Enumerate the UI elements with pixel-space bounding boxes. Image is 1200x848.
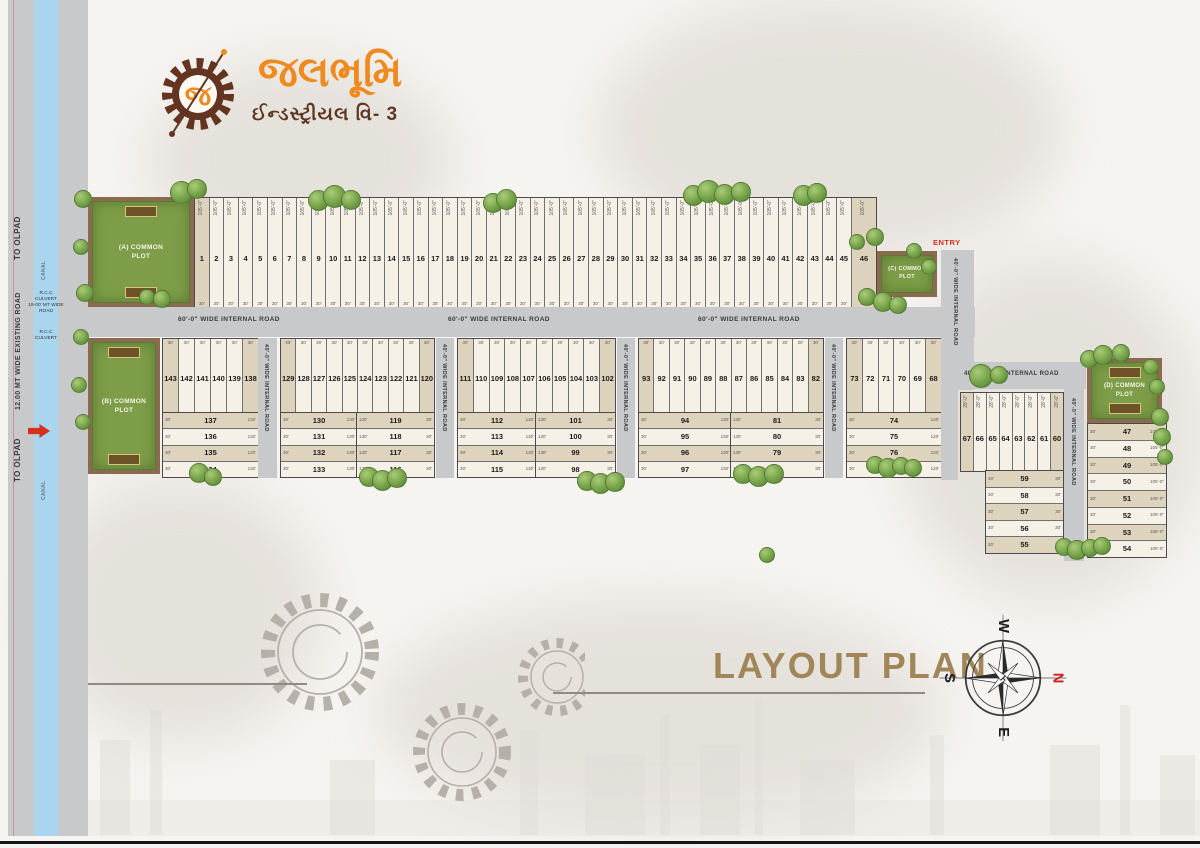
plot-block-73-68: 30'7330'7230'7130'7030'6930'68 xyxy=(846,338,942,414)
plot-126: 30'126 xyxy=(327,339,342,413)
cross-road-3-label: 40'-0" WIDE INTERNAL ROAD xyxy=(622,344,628,474)
plot-block-112-115: 30'112130'30'113130'30'114130'30'115130' xyxy=(457,412,537,478)
plot-80: 130'8030' xyxy=(731,429,823,445)
tree-icon xyxy=(187,179,207,199)
plot-20: 105'-0"2030' xyxy=(472,198,487,308)
plot-63: 28'-0"63 xyxy=(1013,393,1026,471)
tree-icon xyxy=(74,190,92,208)
plot-119: 130'11930' xyxy=(357,413,434,429)
plot-16: 105'-0"1630' xyxy=(414,198,429,308)
plot-4: 105'-0"430' xyxy=(239,198,254,308)
plot-57: 30'5730' xyxy=(986,504,1063,521)
plot-17: 105'-0"1730' xyxy=(429,198,444,308)
plot-108: 30'108 xyxy=(505,339,521,413)
plot-131: 30'131130' xyxy=(281,429,357,445)
plot-block-93-82: 30'9330'9230'9130'9030'8930'8830'8730'86… xyxy=(638,338,824,414)
tree-icon xyxy=(1151,408,1169,426)
plot-9: 105'-0"930' xyxy=(312,198,327,308)
plot-29: 105'-0"2930' xyxy=(604,198,619,308)
tree-icon xyxy=(1153,428,1171,446)
layout-plan-canvas: TO OLPAD TO OLPAD 12.00 MT WIDE EXISTING… xyxy=(0,0,1200,848)
plot-110: 30'110 xyxy=(474,339,490,413)
plot-97: 30'97130' xyxy=(639,462,731,477)
plot-100: 130'10030' xyxy=(536,429,615,445)
plot-137: 30'137130' xyxy=(163,413,258,429)
cross-road-4-label: 40'-0" WIDE INTERNAL ROAD xyxy=(830,344,836,474)
plot-138: 30'138 xyxy=(243,339,258,413)
plot-18: 105'-0"1830' xyxy=(443,198,458,308)
plot-111: 30'111 xyxy=(458,339,474,413)
compass-west: W xyxy=(995,619,1011,633)
plot-143: 30'143 xyxy=(163,339,179,413)
plot-41: 105'-0"4130' xyxy=(779,198,794,308)
plot-102: 30'102 xyxy=(600,339,615,413)
plot-26: 105'-0"2630' xyxy=(560,198,575,308)
plot-row-1-46: 105'-0"130'105'-0"230'105'-0"330'105'-0"… xyxy=(194,197,877,309)
canal-label-top: CANAL xyxy=(41,228,47,280)
logo-subtitle: ઈન્ડસ્ટ્રીયલ વિ- 3 xyxy=(252,104,398,126)
plot-block-67-60: 28'-0"6728'-0"6628'-0"6528'-0"6428'-0"63… xyxy=(960,392,1064,472)
plot-block-94-97: 30'94130'30'95130'30'96130'30'97130' xyxy=(638,412,732,478)
plot-87: 30'87 xyxy=(732,339,747,413)
plot-block-59-55: 30'5930'30'5830'30'5730'30'5630'30'5530' xyxy=(985,470,1064,554)
plot-38: 105'-0"3830' xyxy=(735,198,750,308)
plot-72: 30'72 xyxy=(863,339,879,413)
plot-92: 30'92 xyxy=(654,339,669,413)
plot-48: 30'48105'-0" xyxy=(1088,441,1166,458)
tree-icon xyxy=(1093,345,1113,365)
bottom-border-line xyxy=(0,841,1200,844)
cross-road-1-label: 40'-0" WIDE INTERNAL ROAD xyxy=(263,344,269,474)
plot-71: 30'71 xyxy=(879,339,895,413)
plot-block-101-98: 130'10130'130'10030'130'9930'130'9830' xyxy=(535,412,616,478)
plot-12: 105'-0"1230' xyxy=(356,198,371,308)
to-olpad-top-label: TO OLPAD xyxy=(13,190,22,260)
plot-44: 105'-0"4430' xyxy=(823,198,838,308)
plot-141: 30'141 xyxy=(195,339,211,413)
plot-81: 130'8130' xyxy=(731,413,823,429)
plot-95: 30'95130' xyxy=(639,429,731,445)
plot-88: 30'88 xyxy=(716,339,731,413)
plot-25: 105'-0"2530' xyxy=(545,198,560,308)
plot-69: 30'69 xyxy=(910,339,926,413)
tree-icon xyxy=(153,290,171,308)
plot-32: 105'-0"3230' xyxy=(647,198,662,308)
far-right-vertical-road-label: 40'-0" WIDE INTERNAL ROAD xyxy=(1070,398,1076,554)
plot-136: 30'136130' xyxy=(163,429,258,445)
plot-112: 30'112130' xyxy=(458,413,536,429)
plot-121: 30'121 xyxy=(404,339,419,413)
plot-101: 130'10130' xyxy=(536,413,615,429)
plot-114: 30'114130' xyxy=(458,446,536,462)
right-vertical-road-ext xyxy=(941,388,958,480)
plot-39: 105'-0"3930' xyxy=(750,198,765,308)
plot-113: 30'113130' xyxy=(458,429,536,445)
plot-99: 130'9930' xyxy=(536,446,615,462)
plot-79: 130'7930' xyxy=(731,446,823,462)
plot-96: 30'96130' xyxy=(639,446,731,462)
plot-94: 30'94130' xyxy=(639,413,731,429)
tree-icon xyxy=(387,468,407,488)
plot-118: 130'11830' xyxy=(357,429,434,445)
common-plot-b: (B) COMMON PLOT xyxy=(88,338,160,474)
plot-60: 28'-0"60 xyxy=(1051,393,1063,471)
plot-36: 105'-0"3630' xyxy=(706,198,721,308)
compass-east: E xyxy=(995,727,1011,737)
tree-icon xyxy=(1112,344,1130,362)
plot-115: 30'115130' xyxy=(458,462,536,477)
plot-109: 30'109 xyxy=(490,339,506,413)
plot-11: 105'-0"1130' xyxy=(341,198,356,308)
plot-125: 30'125 xyxy=(343,339,358,413)
plot-52: 30'52105'-0" xyxy=(1088,508,1166,525)
plot-15: 105'-0"1530' xyxy=(399,198,414,308)
plot-13: 105'-0"1330' xyxy=(370,198,385,308)
plot-66: 28'-0"66 xyxy=(974,393,987,471)
plot-103: 30'103 xyxy=(584,339,600,413)
decor-line-left xyxy=(85,683,307,685)
existing-road-label: 12.00 MT WIDE EXISTING ROAD xyxy=(15,252,22,410)
plot-93: 30'93 xyxy=(639,339,654,413)
plot-19: 105'-0"1930' xyxy=(458,198,473,308)
plot-65: 28'-0"65 xyxy=(987,393,1000,471)
plot-85: 30'85 xyxy=(762,339,777,413)
to-olpad-bottom-label: TO OLPAD xyxy=(13,412,22,482)
tree-icon xyxy=(807,183,827,203)
tree-icon xyxy=(605,472,625,492)
plot-122: 30'122 xyxy=(389,339,404,413)
tree-icon xyxy=(204,468,222,486)
plot-59: 30'5930' xyxy=(986,471,1063,488)
tree-icon xyxy=(759,547,775,563)
plot-31: 105'-0"3130' xyxy=(633,198,648,308)
plot-86: 30'86 xyxy=(747,339,762,413)
plot-30: 105'-0"3030' xyxy=(618,198,633,308)
plot-120: 30'120 xyxy=(420,339,434,413)
plot-117: 130'11730' xyxy=(357,446,434,462)
plot-61: 28'-0"61 xyxy=(1038,393,1051,471)
plot-43: 105'-0"4330' xyxy=(808,198,823,308)
plot-82: 30'82 xyxy=(809,339,823,413)
entry-right-label: ENTRY xyxy=(933,238,961,247)
plot-68: 30'68 xyxy=(926,339,941,413)
plot-3: 105'-0"330' xyxy=(224,198,239,308)
plot-132: 30'132130' xyxy=(281,446,357,462)
plot-28: 105'-0"2830' xyxy=(589,198,604,308)
plot-45: 105'-0"4530' xyxy=(837,198,852,308)
plot-7: 105'-0"730' xyxy=(283,198,298,308)
plot-10: 105'-0"1030' xyxy=(326,198,341,308)
plot-58: 30'5830' xyxy=(986,488,1063,505)
tree-icon xyxy=(904,459,922,477)
plot-49: 30'49105'-0" xyxy=(1088,458,1166,475)
plot-124: 30'124 xyxy=(358,339,373,413)
plot-90: 30'90 xyxy=(685,339,700,413)
plot-128: 30'128 xyxy=(296,339,311,413)
culvert-top-label: R.C.C CULVERT xyxy=(28,291,64,303)
canal xyxy=(34,0,58,836)
plot-40: 105'-0"4030' xyxy=(764,198,779,308)
plot-23: 105'-0"2330' xyxy=(516,198,531,308)
compass-rose: W N E S xyxy=(933,608,1073,748)
plot-27: 105'-0"2730' xyxy=(574,198,589,308)
plot-1: 105'-0"130' xyxy=(195,198,210,308)
plot-2: 105'-0"230' xyxy=(210,198,225,308)
plot-block-129-120: 30'12930'12830'12730'12630'12530'12430'1… xyxy=(280,338,435,414)
plot-50: 30'50105'-0" xyxy=(1088,474,1166,491)
cross-road-2-label: 40'-0" WIDE INTERNAL ROAD xyxy=(441,344,447,474)
title-underline xyxy=(553,692,925,694)
canal-label-bottom: CANAL xyxy=(41,448,47,500)
plot-62: 28'-0"62 xyxy=(1025,393,1038,471)
plot-block-130-133: 30'130130'30'131130'30'132130'30'133130' xyxy=(280,412,358,478)
tree-icon xyxy=(76,284,94,302)
plot-91: 30'91 xyxy=(670,339,685,413)
plot-block-111-102: 30'11130'11030'10930'10830'10730'10630'1… xyxy=(457,338,616,414)
plot-106: 30'106 xyxy=(537,339,553,413)
plot-123: 30'123 xyxy=(373,339,388,413)
plot-35: 105'-0"3530' xyxy=(691,198,706,308)
plot-42: 105'-0"4230' xyxy=(793,198,808,308)
plot-84: 30'84 xyxy=(778,339,793,413)
tree-icon xyxy=(1093,537,1111,555)
plot-142: 30'142 xyxy=(179,339,195,413)
plot-104: 30'104 xyxy=(569,339,585,413)
main-road-label-1: 60'-0" WIDE INTERNAL ROAD xyxy=(178,316,280,323)
plot-130: 30'130130' xyxy=(281,413,357,429)
plot-34: 105'-0"3430' xyxy=(677,198,692,308)
tree-icon xyxy=(764,464,784,484)
plot-37: 105'-0"3730' xyxy=(720,198,735,308)
plot-133: 30'133130' xyxy=(281,462,357,477)
compass-south: S xyxy=(941,673,957,683)
tree-icon xyxy=(866,228,884,246)
plot-block-143-138: 30'14330'14230'14130'14030'13930'138 xyxy=(162,338,259,414)
compass-north: N xyxy=(1049,673,1065,684)
plot-5: 105'-0"530' xyxy=(253,198,268,308)
plot-14: 105'-0"1430' xyxy=(385,198,400,308)
plot-105: 30'105 xyxy=(553,339,569,413)
plot-70: 30'70 xyxy=(894,339,910,413)
main-road-label-3: 60'-0" WIDE INTERNAL ROAD xyxy=(698,316,800,323)
plot-56: 30'5630' xyxy=(986,521,1063,538)
plot-129: 30'129 xyxy=(281,339,296,413)
plot-67: 28'-0"67 xyxy=(961,393,974,471)
plot-24: 105'-0"2430' xyxy=(531,198,546,308)
plot-21: 105'-0"2130' xyxy=(487,198,502,308)
plot-55: 30'5530' xyxy=(986,537,1063,553)
tree-icon xyxy=(889,296,907,314)
plot-140: 30'140 xyxy=(211,339,227,413)
plot-64: 28'-0"64 xyxy=(1000,393,1013,471)
tree-icon xyxy=(990,366,1008,384)
plot-33: 105'-0"3330' xyxy=(662,198,677,308)
plot-107: 30'107 xyxy=(521,339,537,413)
tree-icon xyxy=(731,182,751,202)
plot-127: 30'127 xyxy=(312,339,327,413)
plot-51: 30'51105'-0" xyxy=(1088,491,1166,508)
plot-73: 30'73 xyxy=(847,339,863,413)
plot-75: 30'75120' xyxy=(847,429,941,445)
logo-gear-icon: જ xyxy=(148,42,248,142)
plot-89: 30'89 xyxy=(701,339,716,413)
plot-135: 30'135130' xyxy=(163,446,258,462)
plot-74: 30'74120' xyxy=(847,413,941,429)
tree-icon xyxy=(341,190,361,210)
plot-22: 105'-0"2230' xyxy=(501,198,516,308)
main-road-label-2: 60'-0" WIDE INTERNAL ROAD xyxy=(448,316,550,323)
plot-139: 30'139 xyxy=(227,339,243,413)
logo-title: જલભૂમિ xyxy=(258,48,402,97)
plot-8: 105'-0"830' xyxy=(297,198,312,308)
plot-6: 105'-0"630' xyxy=(268,198,283,308)
plot-83: 30'83 xyxy=(793,339,808,413)
